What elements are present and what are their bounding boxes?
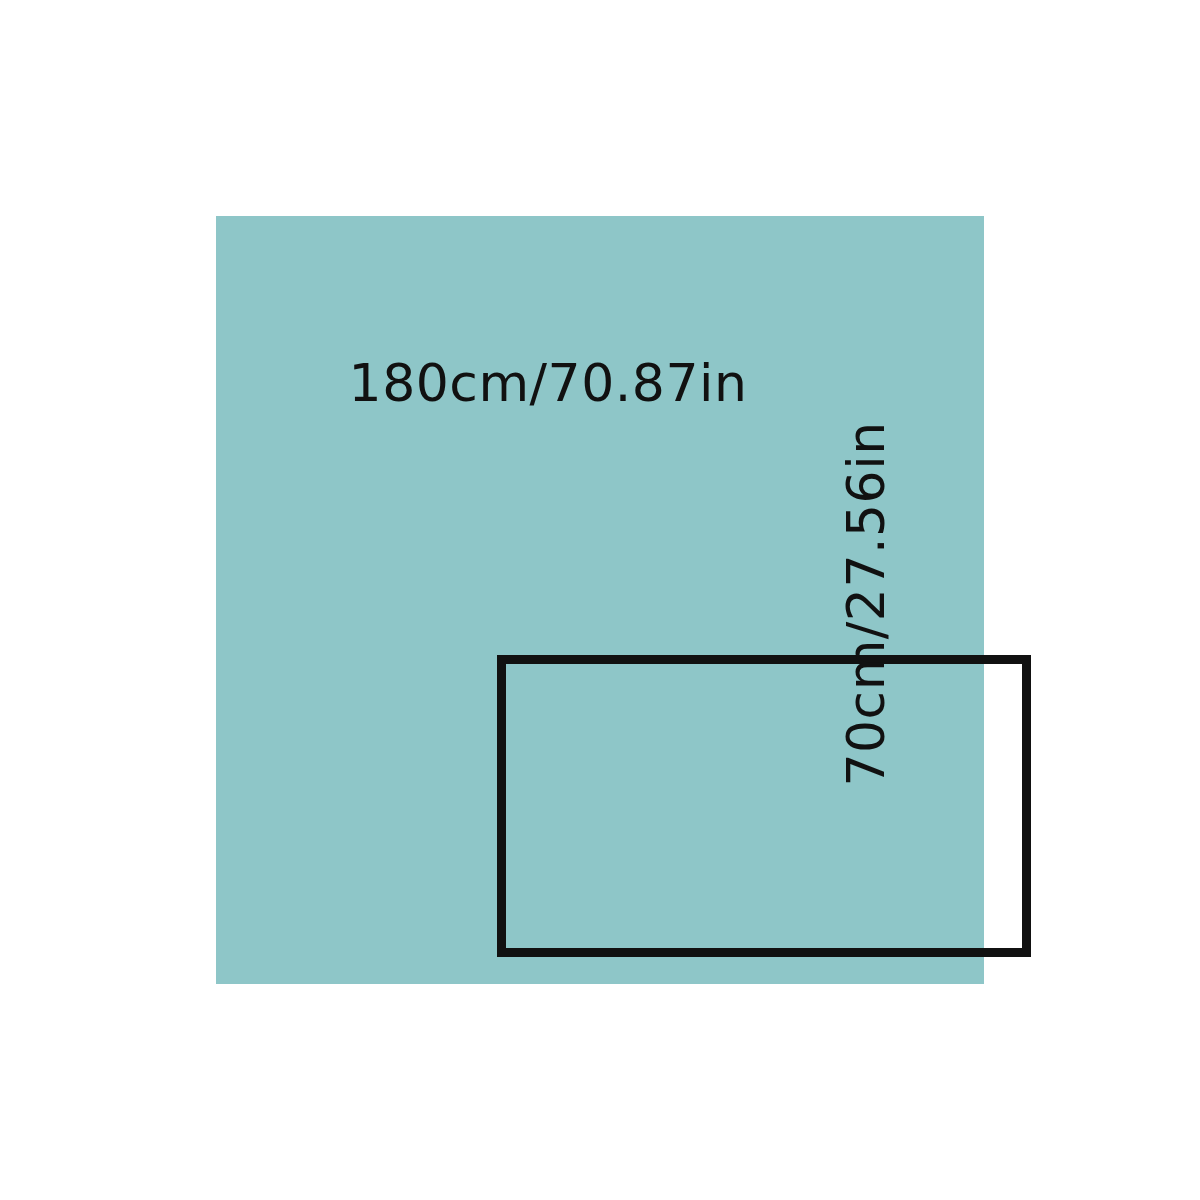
diagram-canvas: 180cm/70.87in 70cm/27.56in — [0, 0, 1200, 1200]
dimension-rectangle — [497, 655, 1031, 957]
width-dimension-label: 180cm/70.87in — [281, 352, 815, 414]
product-image-panel: 180cm/70.87in 70cm/27.56in — [216, 216, 984, 984]
height-dimension-label: 70cm/27.56in — [836, 421, 896, 786]
